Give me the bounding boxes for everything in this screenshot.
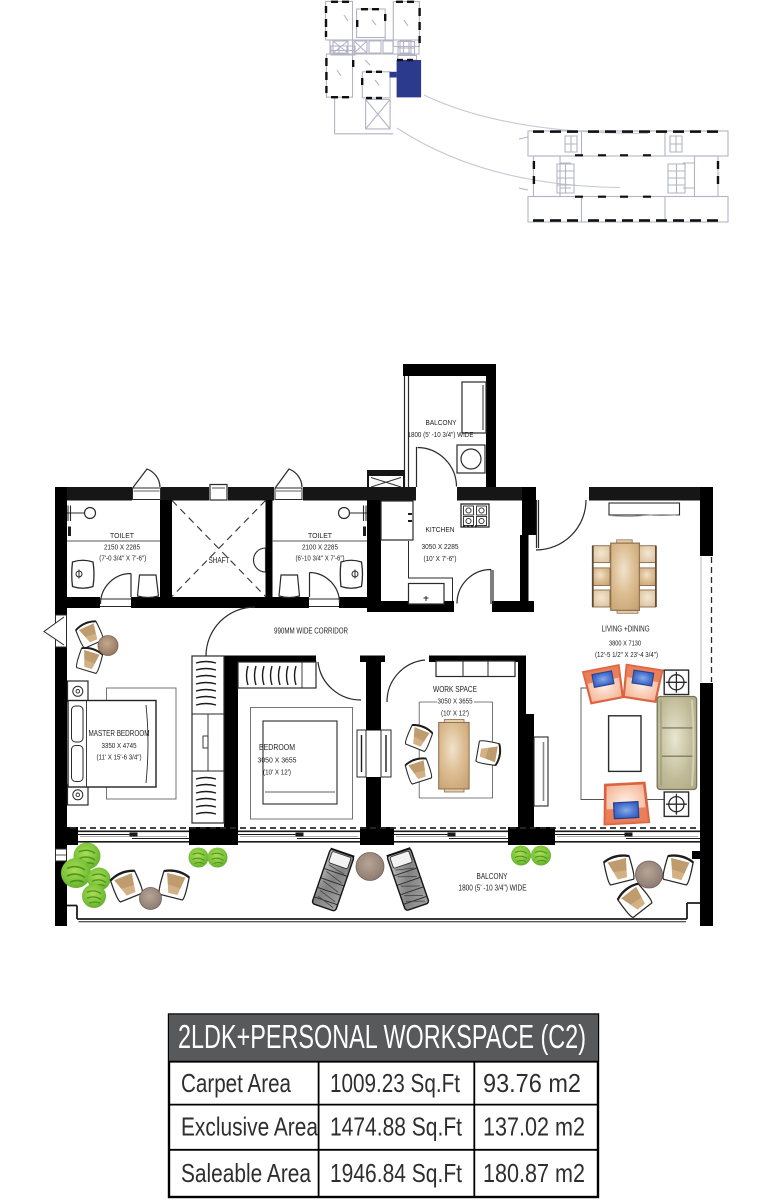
svg-text:BALCONY: BALCONY [426, 418, 457, 427]
svg-text:BEDROOM: BEDROOM [259, 743, 295, 752]
svg-text:3800 X 7130: 3800 X 7130 [609, 639, 641, 648]
svg-text:LIVING +DINING: LIVING +DINING [602, 625, 650, 634]
svg-text:BALCONY: BALCONY [477, 872, 509, 881]
svg-text:(6'-10 3/4" X 7'-6"): (6'-10 3/4" X 7'-6") [296, 554, 345, 563]
svg-text:(11' X 15'-6 3/4"): (11' X 15'-6 3/4") [97, 753, 142, 762]
svg-text:3050 X 2285: 3050 X 2285 [422, 542, 459, 551]
svg-text:KITCHEN: KITCHEN [426, 525, 455, 534]
svg-text:1009.23 Sq.Ft: 1009.23 Sq.Ft [330, 1068, 461, 1098]
svg-text:990MM WIDE CORRIDOR: 990MM WIDE CORRIDOR [274, 627, 348, 636]
svg-text:3350 X 4745: 3350 X 4745 [102, 741, 137, 750]
svg-text:1474.88 Sq.Ft: 1474.88 Sq.Ft [330, 1112, 463, 1142]
svg-text:(10' X 12'): (10' X 12') [263, 768, 291, 777]
svg-text:137.02 m2: 137.02 m2 [483, 1112, 585, 1142]
svg-text:180.87 m2: 180.87 m2 [483, 1158, 585, 1188]
svg-text:2LDK+PERSONAL WORKSPACE (C2): 2LDK+PERSONAL WORKSPACE (C2) [178, 1018, 586, 1055]
svg-text:Carpet Area: Carpet Area [181, 1068, 291, 1098]
svg-text:MASTER BEDROOM: MASTER BEDROOM [89, 729, 150, 738]
svg-text:2100 X 2285: 2100 X 2285 [302, 543, 338, 552]
svg-text:(10' X 12'): (10' X 12') [441, 708, 469, 717]
svg-text:1800 (5' -10 3/4") WIDE: 1800 (5' -10 3/4") WIDE [408, 430, 474, 439]
svg-text:Saleable Area: Saleable Area [181, 1158, 311, 1188]
svg-text:TOILET: TOILET [308, 531, 332, 540]
svg-text:Exclusive Area: Exclusive Area [181, 1112, 318, 1142]
svg-text:93.76 m2: 93.76 m2 [483, 1068, 581, 1098]
svg-text:TOILET: TOILET [110, 531, 134, 540]
svg-text:3050 X 3655: 3050 X 3655 [438, 697, 473, 706]
svg-text:(12'-5 1/2" X 23'-4 3/4"): (12'-5 1/2" X 23'-4 3/4") [595, 650, 658, 659]
svg-text:WORK SPACE: WORK SPACE [433, 685, 477, 694]
svg-text:1946.84 Sq.Ft: 1946.84 Sq.Ft [330, 1158, 463, 1188]
svg-text:1800 (5' -10 3/4") WIDE: 1800 (5' -10 3/4") WIDE [459, 884, 527, 893]
svg-text:2150 X 2285: 2150 X 2285 [104, 543, 140, 552]
svg-text:(10' X 7'-6"): (10' X 7'-6") [424, 554, 457, 563]
svg-text:(7'-0 3/4" X 7'-6"): (7'-0 3/4" X 7'-6") [99, 554, 146, 563]
svg-text:3050 X 3655: 3050 X 3655 [258, 756, 297, 765]
svg-text:SHAFT: SHAFT [209, 556, 230, 565]
